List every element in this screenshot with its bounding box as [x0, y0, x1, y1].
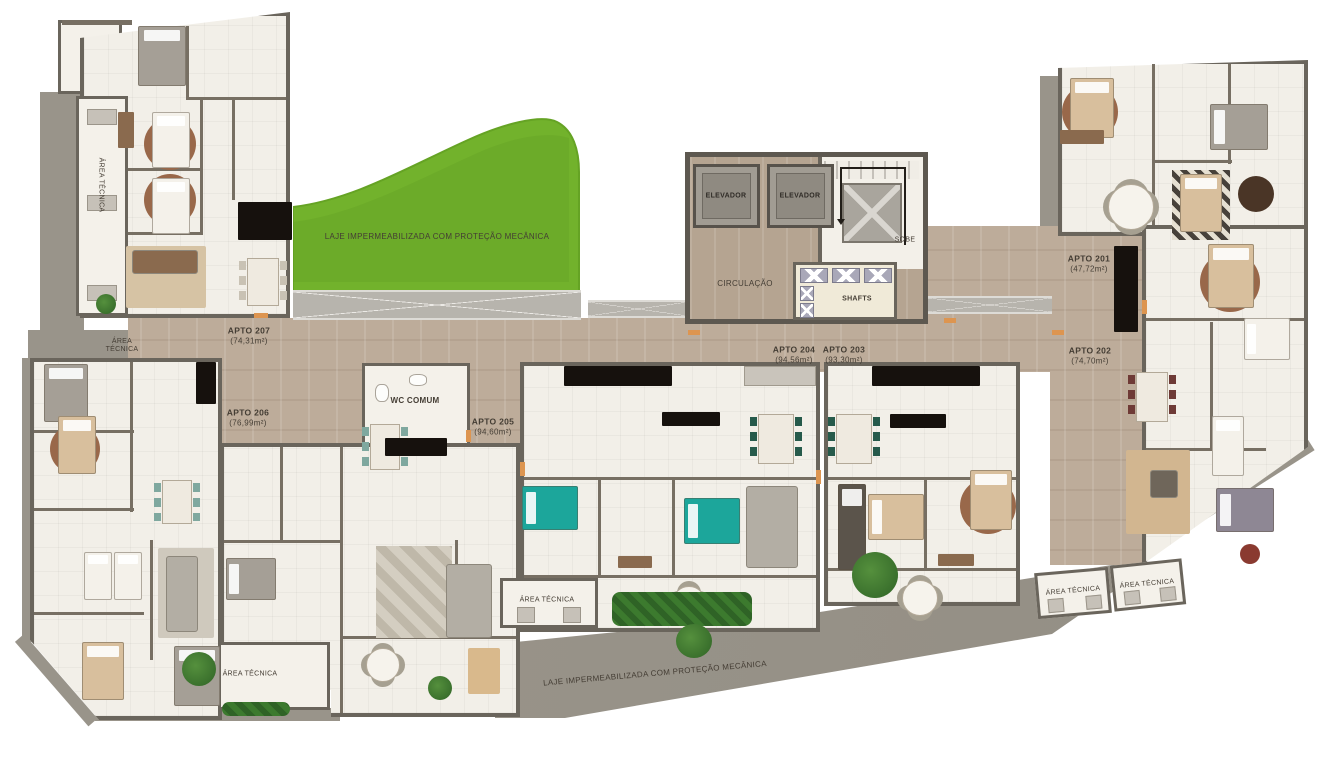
round-table-4	[1108, 184, 1154, 230]
kitchen-island	[662, 412, 720, 426]
sofa	[132, 250, 198, 274]
kitchen-counter	[238, 202, 292, 240]
area-tecnica-label-center: ÁREA TÉCNICA	[520, 595, 575, 604]
desk	[118, 112, 134, 148]
kitchen-counter	[196, 362, 216, 404]
armchair-red	[1240, 544, 1260, 564]
apto-201-area: (47,72m²)	[1068, 264, 1110, 274]
door-mark	[520, 462, 525, 476]
wall	[34, 508, 134, 511]
apto-204-name: APTO 204	[773, 344, 815, 354]
bed	[522, 486, 578, 530]
sofa	[746, 486, 798, 568]
dining-table-6	[162, 480, 192, 524]
washer	[87, 109, 117, 125]
sofa	[166, 556, 198, 632]
bed	[82, 642, 124, 700]
wall	[524, 477, 816, 480]
bed	[868, 494, 924, 540]
sobe-label: SOBE	[895, 235, 916, 244]
slab-xstrip-left-of-core	[588, 300, 688, 318]
kitchen-counter	[1114, 246, 1138, 332]
shafts-box	[793, 262, 897, 320]
bed	[970, 470, 1012, 530]
stair-void	[842, 183, 902, 243]
apto-207-label: APTO 207 (74,31m²)	[228, 325, 270, 346]
plant	[182, 652, 216, 686]
kitchen-counter	[385, 438, 447, 456]
wc-comum-label: WC COMUM	[390, 396, 439, 406]
slab-xstrip-right-of-core	[928, 296, 1052, 314]
wall	[62, 20, 132, 25]
apto-202-area: (74,70m²)	[1069, 356, 1111, 366]
bed	[1180, 174, 1222, 232]
floor-plan: ELEVADOR ELEVADOR SOBE CIRCULAÇÃO SHAFTS…	[0, 0, 1332, 761]
wall	[34, 612, 144, 615]
dining-table-6	[1136, 372, 1168, 422]
wall	[672, 477, 675, 577]
kitchen-counter	[564, 366, 672, 386]
apto-205-label: APTO 205 (94,60m²)	[472, 416, 514, 437]
bed	[84, 552, 112, 600]
apto-206-name: APTO 206	[227, 407, 269, 417]
apto-203-name: APTO 203	[823, 344, 865, 354]
plant	[428, 676, 452, 700]
door-mark	[944, 318, 956, 323]
door-mark	[1142, 300, 1147, 314]
desk	[1060, 130, 1104, 144]
door-mark	[816, 470, 821, 484]
slab-xstrip-main	[293, 290, 581, 320]
apto-201-label: APTO 201 (47,72m²)	[1068, 253, 1110, 274]
bed	[44, 364, 88, 422]
washer	[1159, 586, 1176, 602]
door-mark	[466, 430, 471, 442]
washer	[1047, 598, 1064, 613]
bed	[684, 498, 740, 544]
elevator-2-label: ELEVADOR	[780, 191, 821, 200]
bed	[1208, 244, 1254, 308]
toilet	[375, 384, 389, 402]
apto-204-area: (94,56m²)	[773, 355, 815, 365]
shaft-cell	[864, 268, 892, 283]
stair-path-line	[904, 167, 906, 245]
wall	[340, 447, 343, 713]
wall	[280, 447, 283, 542]
laje-label-top: LAJE IMPERMEABILIZADA COM PROTEÇÃO MECÂN…	[325, 232, 550, 242]
washer	[563, 607, 581, 623]
bed	[1070, 78, 1114, 138]
washer	[1124, 590, 1141, 606]
apto-207-area: (74,31m²)	[228, 336, 270, 346]
circulacao-label: CIRCULAÇÃO	[717, 279, 772, 289]
counter	[744, 366, 816, 386]
grass-roof	[293, 112, 583, 294]
bed	[226, 558, 276, 600]
washer	[1085, 595, 1102, 610]
wall	[150, 540, 153, 660]
area-tecnica-label-topleft: ÁREA TÉCNICA	[96, 158, 105, 213]
wall	[130, 362, 133, 512]
wall	[1152, 160, 1232, 163]
kitchen-island	[890, 414, 946, 428]
shaft-cell	[800, 286, 814, 301]
bed	[152, 178, 190, 234]
bed	[138, 26, 186, 86]
desk	[938, 554, 974, 566]
hedge	[222, 702, 290, 716]
stair-path-line	[840, 167, 842, 219]
stair-path-line	[840, 167, 906, 169]
bed	[1212, 416, 1244, 476]
sofa	[446, 564, 492, 638]
wall	[186, 26, 189, 100]
bed	[1216, 488, 1274, 532]
desk	[618, 556, 652, 568]
apto-206-label: APTO 206 (76,99m²)	[227, 407, 269, 428]
round-table-4	[902, 580, 938, 616]
bed	[1244, 318, 1290, 360]
door-mark	[254, 313, 268, 318]
apto-203-area: (93,30m²)	[823, 355, 865, 365]
armchair	[1150, 470, 1178, 498]
apto-207-name: APTO 207	[228, 325, 270, 335]
lounge-chair	[468, 648, 500, 694]
shafts-label: SHAFTS	[842, 294, 872, 303]
shaft-cell	[832, 268, 860, 283]
elevator-1-label: ELEVADOR	[706, 191, 747, 200]
round-table-4	[366, 648, 400, 682]
hedge	[612, 592, 752, 626]
bed	[152, 112, 190, 168]
apto-202-name: APTO 202	[1069, 345, 1111, 355]
apto-205-name: APTO 205	[472, 416, 514, 426]
shaft-cell	[800, 303, 814, 318]
apto-203-label: APTO 203 (93,30m²)	[823, 344, 865, 365]
dining-table-6	[836, 414, 872, 464]
wall	[200, 100, 203, 235]
bed	[58, 416, 96, 474]
door-mark	[1052, 330, 1064, 335]
shaft-cell	[800, 268, 828, 283]
wall	[232, 100, 235, 200]
door-mark	[688, 330, 700, 335]
plant	[96, 294, 116, 314]
slab-right-sliver	[1040, 76, 1060, 232]
bed	[114, 552, 142, 600]
apto-206-area: (76,99m²)	[227, 418, 269, 428]
round-rug	[1238, 176, 1274, 212]
apto-202-label: APTO 202 (74,70m²)	[1069, 345, 1111, 366]
kitchen-counter	[872, 366, 980, 386]
area-tecnica-label-bl: ÁREA TÉCNICA	[223, 669, 278, 678]
wall	[598, 477, 601, 577]
dining-table-6	[758, 414, 794, 464]
area-tecnica-label-left: ÁREA TÉCNICA	[97, 338, 147, 354]
apto-201-name: APTO 201	[1068, 253, 1110, 263]
bed	[1210, 104, 1268, 150]
washer	[517, 607, 535, 623]
plant	[852, 552, 898, 598]
apto-205-area: (94,60m²)	[472, 427, 514, 437]
sink	[409, 374, 427, 386]
dining-table-6	[247, 258, 279, 306]
plant	[676, 624, 712, 658]
wall	[924, 477, 927, 569]
apto-204-label: APTO 204 (94,56m²)	[773, 344, 815, 365]
rug	[376, 546, 452, 638]
stair-direction-arrow	[837, 219, 845, 225]
